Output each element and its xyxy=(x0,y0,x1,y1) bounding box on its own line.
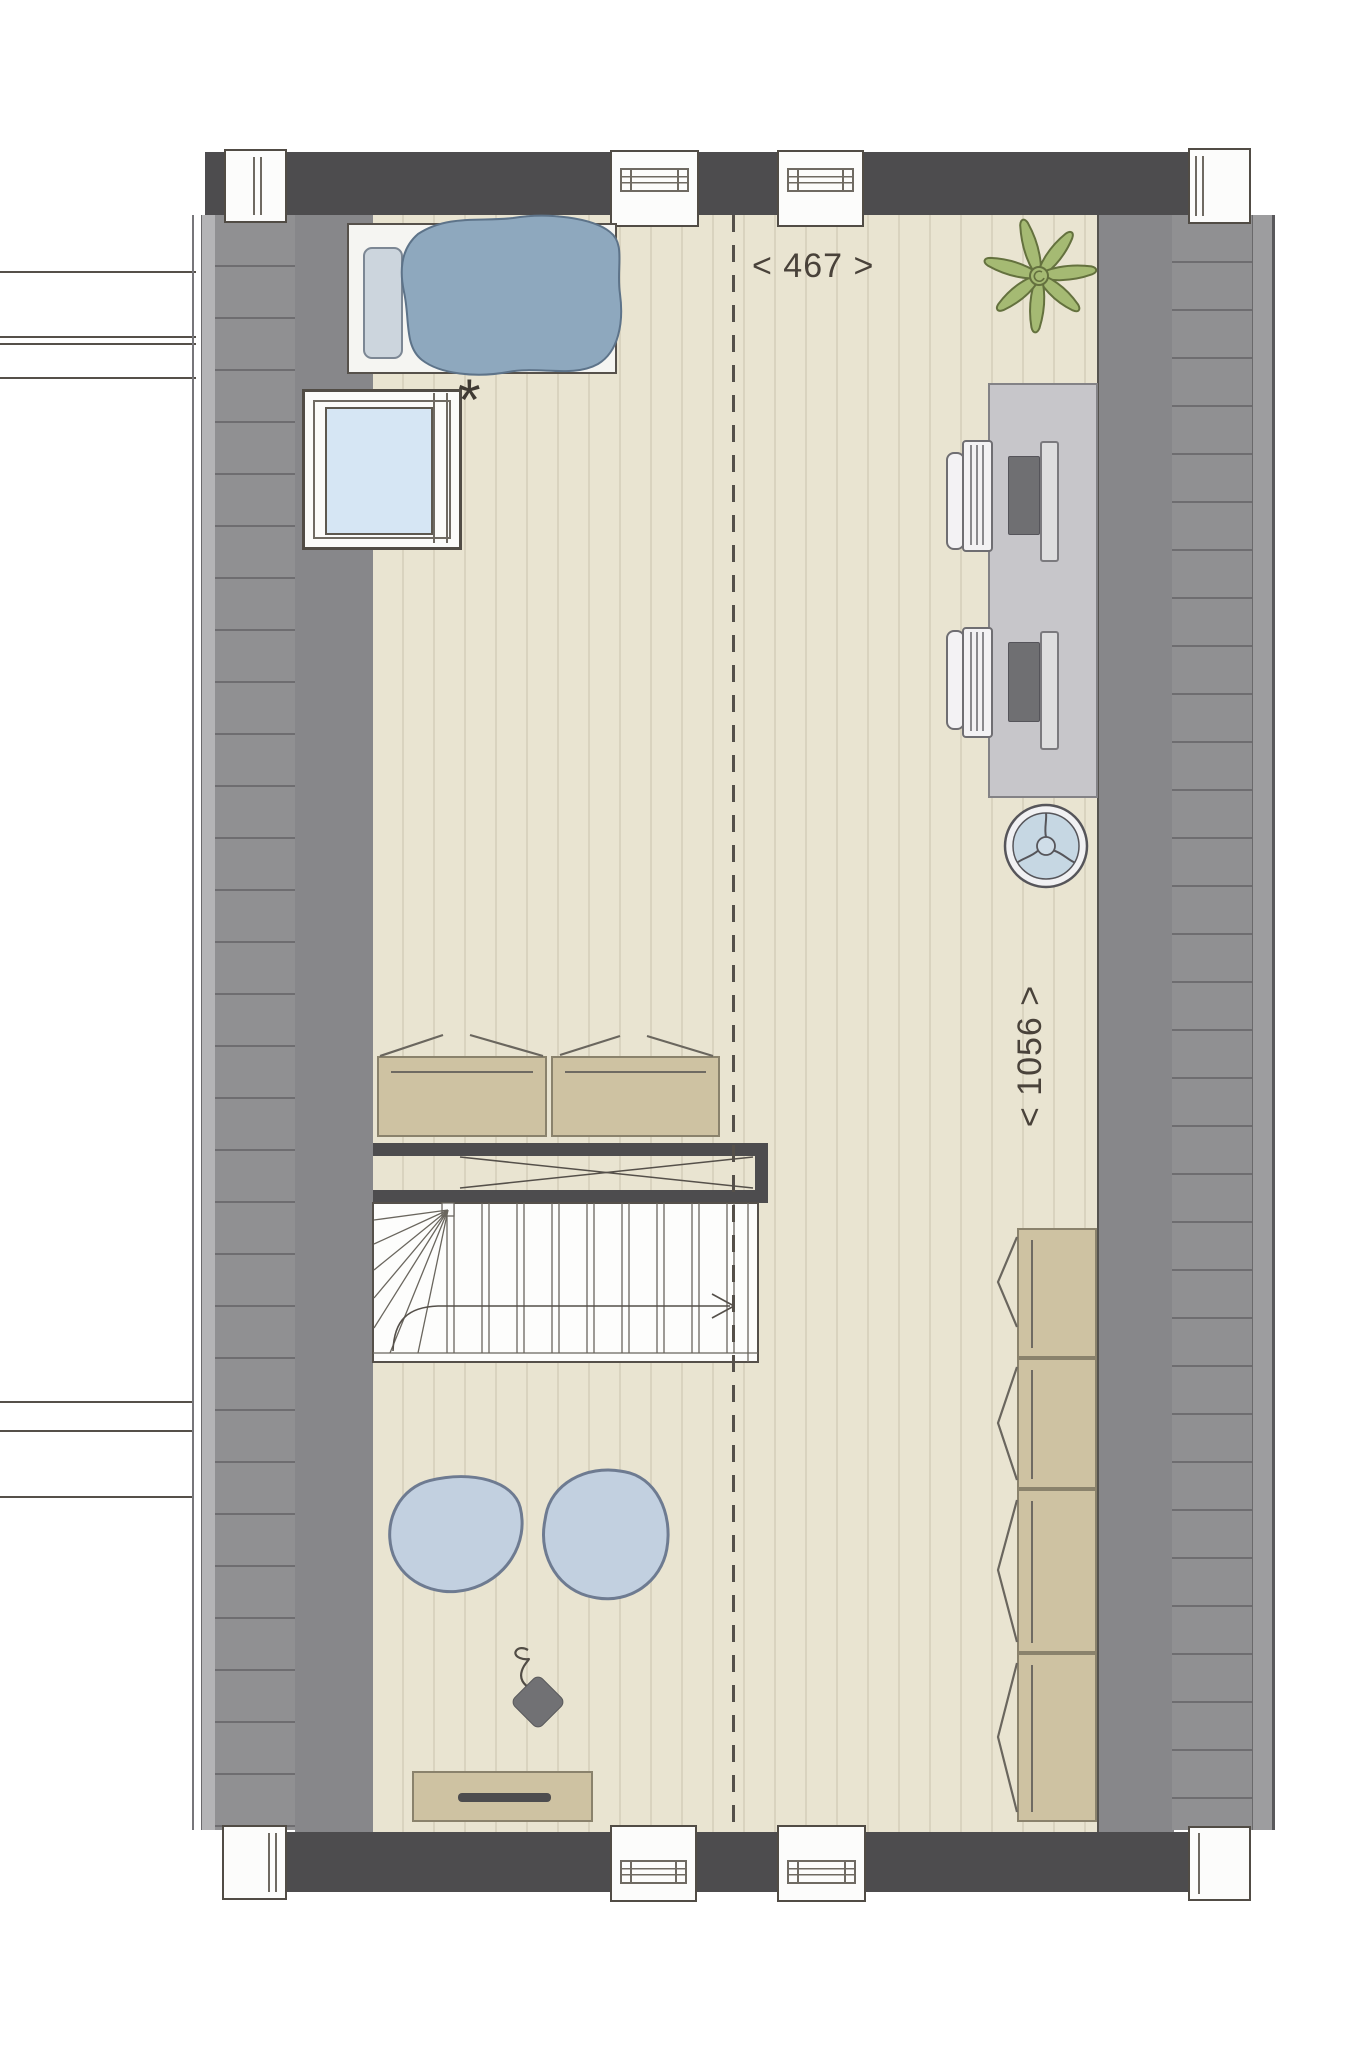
left-eave-line xyxy=(192,215,194,1830)
chimney-block-bottom-left xyxy=(222,1825,287,1900)
bottom-wall xyxy=(283,1832,1188,1892)
roof-window-glass xyxy=(325,407,433,535)
chimney-block-top-right xyxy=(1188,148,1251,224)
dormer-sash xyxy=(787,1860,856,1884)
ceiling-fan-icon xyxy=(1001,801,1091,891)
right-eave-line xyxy=(1272,215,1275,1830)
monitor xyxy=(1008,642,1040,722)
sash-cap xyxy=(844,1862,846,1882)
width-dimension-label: < 467 > xyxy=(752,247,864,286)
desk-chair-seat xyxy=(962,627,993,738)
dormer-sash xyxy=(787,168,854,192)
chimney-joint-line xyxy=(268,1833,270,1892)
chimney-block-bottom-right xyxy=(1188,1826,1251,1901)
chair-slat xyxy=(970,445,972,545)
chimney-joint-line xyxy=(253,157,255,215)
duvet xyxy=(388,206,630,388)
staircase xyxy=(360,1140,780,1370)
attic-floor-plan: * < 467 > xyxy=(0,0,1348,2048)
dormer-window xyxy=(610,1825,697,1902)
storage-bench xyxy=(377,1056,547,1137)
chair-slat xyxy=(976,445,978,545)
bench-lid-line xyxy=(391,1071,533,1073)
sash-cap xyxy=(842,170,844,190)
depth-dimension-label: < 1056 > xyxy=(955,981,1105,1131)
chimney-block-top-left xyxy=(224,149,287,223)
keyboard xyxy=(1040,631,1059,750)
roof-window-sash-line xyxy=(446,393,448,543)
chimney-joint-line xyxy=(260,157,262,215)
stair-railing xyxy=(460,1157,753,1188)
chair-slat xyxy=(976,632,978,731)
dormer-window xyxy=(777,1825,866,1902)
exterior-line xyxy=(0,336,196,338)
chimney-joint-line xyxy=(1195,156,1197,216)
desk-chair-seat xyxy=(962,440,993,552)
sash-cap xyxy=(630,1862,632,1882)
wardrobe-opening-marks xyxy=(990,1228,1100,1822)
exterior-line xyxy=(0,1430,193,1432)
dormer-window xyxy=(777,150,864,227)
keyboard xyxy=(1040,441,1059,562)
sideboard-handle xyxy=(458,1793,551,1802)
bench-opening-marks xyxy=(370,1026,730,1060)
roof-window-sash-line xyxy=(433,393,435,543)
plant-icon xyxy=(973,212,1105,344)
sash-cap xyxy=(675,1862,677,1882)
exterior-line xyxy=(0,343,196,345)
exterior-line xyxy=(0,377,196,379)
chair-slat xyxy=(982,445,984,545)
sideboard xyxy=(412,1771,593,1822)
chair-slat xyxy=(982,632,984,731)
chimney-joint-line xyxy=(1198,1833,1200,1894)
right-roof-slope xyxy=(1097,215,1174,1832)
sash-cap xyxy=(677,170,679,190)
bench-lid-line xyxy=(565,1071,706,1073)
chimney-joint-line xyxy=(275,1833,277,1892)
storage-bench xyxy=(551,1056,720,1137)
skylight-marker: * xyxy=(458,378,481,424)
sash-cap xyxy=(797,170,799,190)
chair-slat xyxy=(970,632,972,731)
ridge-line xyxy=(732,215,735,1830)
chimney-joint-line xyxy=(1202,156,1204,216)
exterior-line xyxy=(0,271,196,273)
left-roof-slope-hatched xyxy=(215,215,295,1830)
right-eave-strip xyxy=(1252,215,1273,1830)
right-roof-slope-hatched xyxy=(1172,215,1252,1830)
dormer-sash xyxy=(620,168,689,192)
sash-cap xyxy=(797,1862,799,1882)
exterior-line xyxy=(0,1401,193,1403)
monitor xyxy=(1008,456,1040,535)
sash-cap xyxy=(630,170,632,190)
exterior-line xyxy=(0,1496,193,1498)
dormer-sash xyxy=(620,1860,687,1884)
